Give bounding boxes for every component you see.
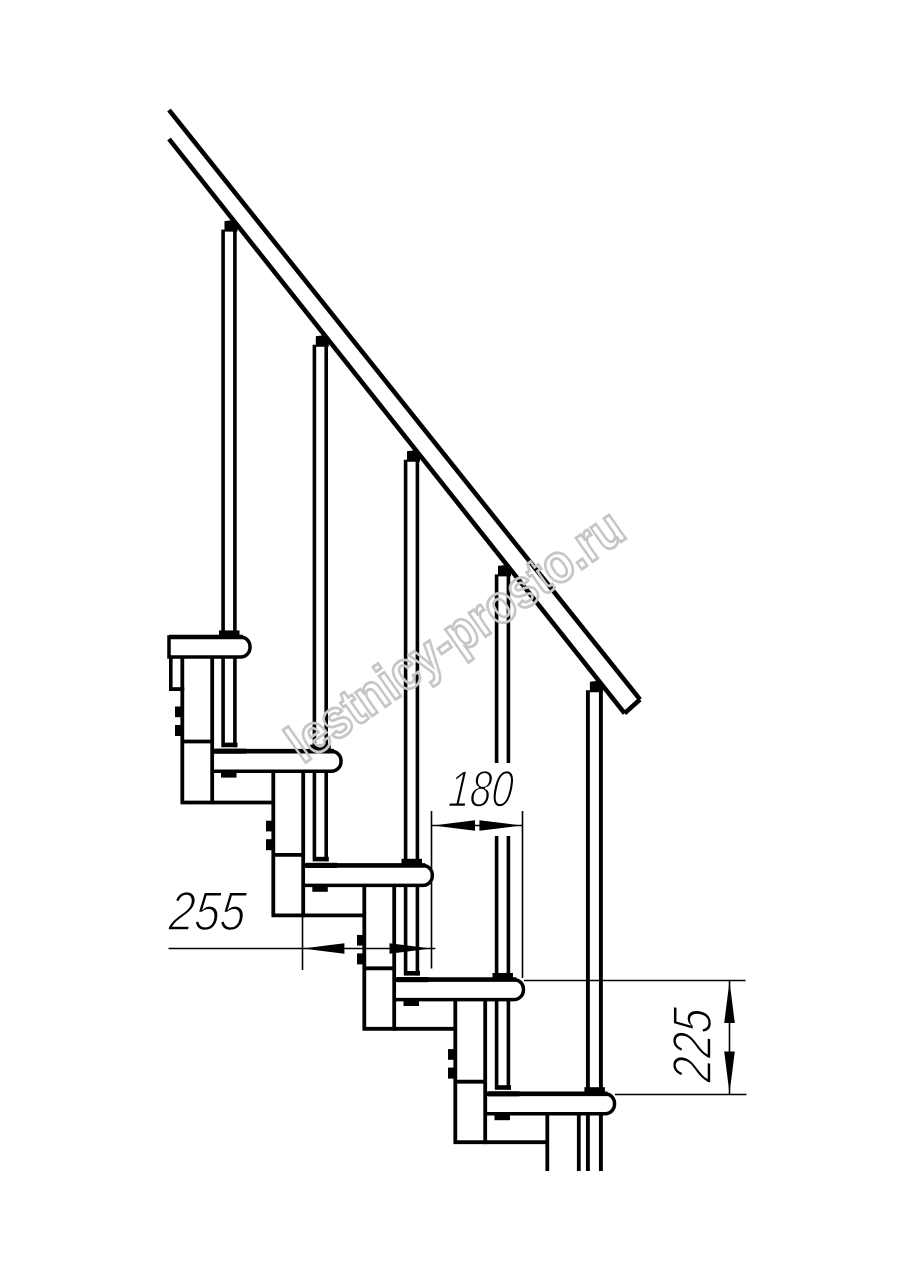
svg-text:225: 225: [661, 1005, 723, 1085]
svg-text:255: 255: [166, 880, 249, 942]
svg-text:180: 180: [447, 760, 516, 818]
